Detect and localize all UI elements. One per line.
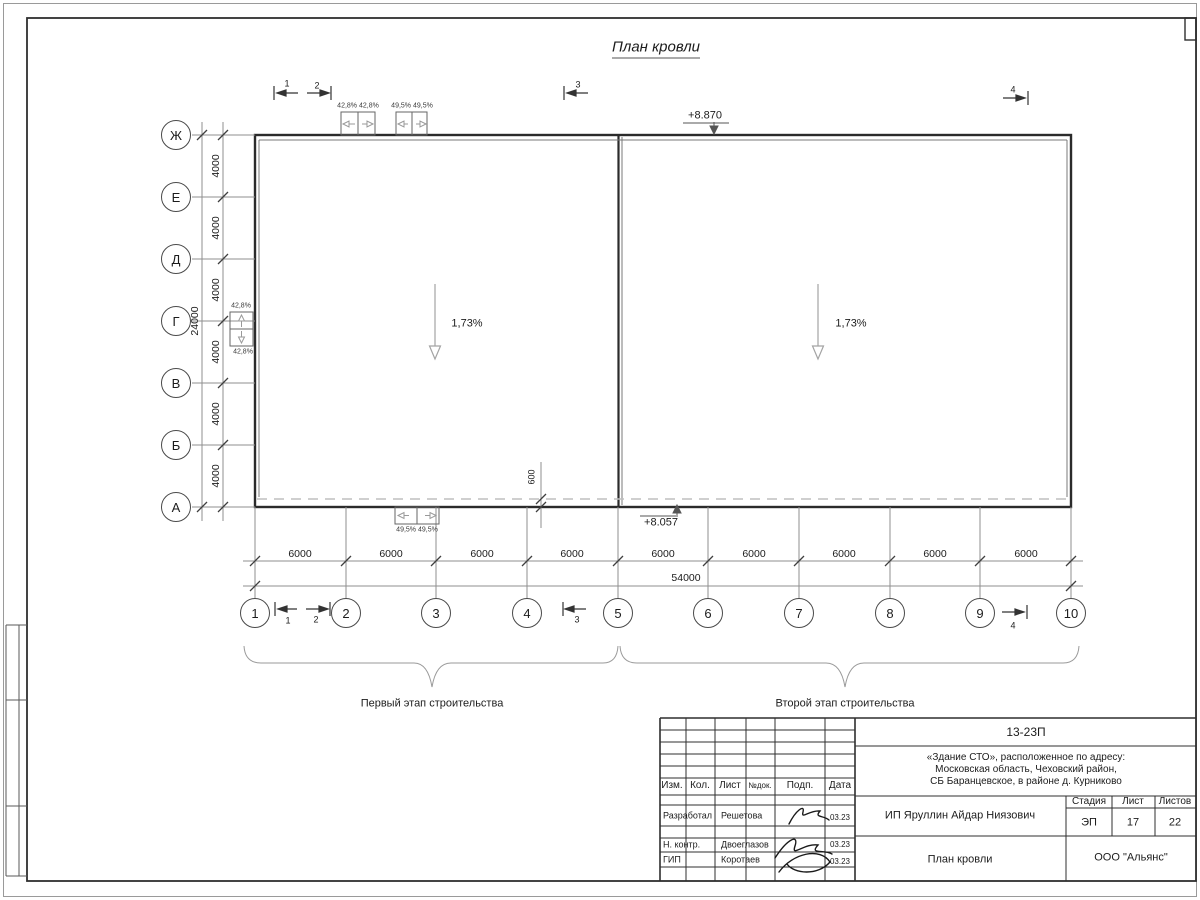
project-address-1: «Здание СТО», расположенное по адресу: (927, 753, 1125, 763)
dim-col: 6000 (1014, 549, 1037, 560)
dim-col: 6000 (560, 549, 583, 560)
company-name: ООО "Альянс" (1094, 853, 1168, 864)
dim-600: 600 (528, 469, 537, 484)
name-developer: Решетова (721, 812, 762, 821)
name-gip: Коротаев (721, 856, 760, 865)
axis-circle-col: 1 (240, 598, 270, 628)
axis-circle-col: 2 (331, 598, 361, 628)
axis-circle-row: А (161, 492, 191, 522)
dim-col-total: 54000 (671, 573, 700, 584)
project-code: 13-23П (1006, 726, 1045, 738)
dim-row: 4000 (211, 154, 222, 177)
section-label-bottom: 2 (313, 616, 318, 625)
col-header-izm: Изм. (661, 781, 682, 791)
dim-row: 4000 (211, 278, 222, 301)
signatures (775, 808, 832, 872)
col-header-podp: Подп. (787, 781, 814, 791)
dim-row: 4000 (211, 402, 222, 425)
axis-label: 9 (976, 606, 983, 621)
drawing-title: План кровли (612, 40, 700, 59)
date-ncontrol: 03.23 (830, 841, 850, 849)
section-label-top: 2 (314, 82, 319, 91)
axis-label: Ж (170, 128, 182, 143)
stage-1-label: Первый этап строительства (361, 699, 504, 710)
client-name: ИП Яруллин Айдар Ниязович (885, 811, 1035, 822)
slope-arrows (430, 284, 824, 359)
building-inner-lines (259, 137, 1067, 505)
section-markers (274, 86, 1028, 619)
axis-circle-row: Е (161, 182, 191, 212)
slope-label-right: 1,73% (835, 319, 866, 330)
dimension-ticks (197, 130, 1076, 591)
axis-label: 6 (704, 606, 711, 621)
axis-label: 3 (432, 606, 439, 621)
axis-circle-row: Ж (161, 120, 191, 150)
elevation-mark-top: +8.870 (688, 111, 722, 122)
axis-circle-col: 9 (965, 598, 995, 628)
dim-row: 4000 (211, 216, 222, 239)
axis-circle-col: 5 (603, 598, 633, 628)
col-header-data: Дата (829, 781, 851, 791)
col-header-ndok: №док. (748, 782, 771, 790)
axis-label: 5 (614, 606, 621, 621)
stage-header: Стадия (1072, 797, 1106, 807)
sheet-header: Лист (1122, 797, 1144, 807)
axis-label: Е (172, 190, 181, 205)
axis-label: А (172, 500, 181, 515)
slope-label-left: 1,73% (451, 319, 482, 330)
dim-col: 6000 (651, 549, 674, 560)
role-developer: Разработал (663, 812, 712, 821)
project-address-3: СБ Баранцевское, в районе д. Курниково (930, 777, 1122, 787)
dim-col: 6000 (832, 549, 855, 560)
axis-label: 8 (886, 606, 893, 621)
axis-circle-col: 4 (512, 598, 542, 628)
axis-circle-row: Д (161, 244, 191, 274)
role-gip: ГИП (663, 856, 681, 865)
axis-circle-col: 3 (421, 598, 451, 628)
axis-label: Д (172, 252, 181, 267)
axis-label: 2 (342, 606, 349, 621)
axis-label: 4 (523, 606, 530, 621)
name-ncontrol: Двоеглазов (721, 841, 769, 850)
vent-label-left-top: 42,8% (231, 303, 251, 310)
section-label-bottom: 4 (1010, 622, 1015, 631)
sheets-header: Листов (1159, 797, 1192, 807)
section-label-top: 3 (575, 81, 580, 90)
stage-value: ЭП (1081, 818, 1097, 829)
elevation-leaders (640, 122, 729, 516)
axis-lines (192, 122, 1083, 599)
axis-label: 1 (251, 606, 258, 621)
role-ncontrol: Н. контр. (663, 841, 700, 850)
building-outline (255, 135, 1071, 507)
project-address-2: Московская область, Чеховский район, (935, 765, 1117, 775)
roof-vents (230, 112, 439, 524)
vent-label-top-2: 49,5% 49,5% (391, 103, 433, 110)
axis-label: В (172, 376, 181, 391)
axis-circle-col: 6 (693, 598, 723, 628)
dim-row: 4000 (211, 340, 222, 363)
elevation-mark-bottom: +8.057 (644, 518, 678, 529)
axis-circle-row: Б (161, 430, 191, 460)
drawing-sheet: План кровли +8.870 +8.057 1,73% 1,73% 42… (0, 0, 1200, 900)
col-header-list: Лист (719, 781, 741, 791)
axis-label: Г (172, 314, 179, 329)
dim-row-total: 24000 (190, 306, 201, 335)
axis-circle-row: В (161, 368, 191, 398)
vent-label-top-1: 42,8% 42,8% (337, 103, 379, 110)
vent-label-left-bottom: 42,8% (233, 349, 253, 356)
section-label-bottom: 3 (574, 616, 579, 625)
dim-col: 6000 (470, 549, 493, 560)
axis-circle-col: 7 (784, 598, 814, 628)
margin-boxes (6, 625, 27, 876)
sheets-total: 22 (1169, 818, 1181, 829)
stage-2-label: Второй этап строительства (776, 699, 915, 710)
dim-row: 4000 (211, 464, 222, 487)
dim-col: 6000 (379, 549, 402, 560)
stage-braces (244, 646, 1079, 687)
col-header-kol: Кол. (690, 781, 710, 791)
document-title: План кровли (928, 855, 993, 866)
axis-circle-col: 10 (1056, 598, 1086, 628)
dim-col: 6000 (288, 549, 311, 560)
date-gip: 03.23 (830, 858, 850, 866)
axis-label: 10 (1064, 606, 1078, 621)
axis-circle-row: Г (161, 306, 191, 336)
vent-arrows (239, 121, 437, 519)
dim-col: 6000 (742, 549, 765, 560)
section-label-bottom: 1 (285, 617, 290, 626)
section-label-top: 4 (1010, 86, 1015, 95)
sheet-number: 17 (1127, 818, 1139, 829)
axis-label: Б (172, 438, 181, 453)
vent-label-bottom: 49,5% 49,5% (396, 527, 438, 534)
date-developer: 03.23 (830, 814, 850, 822)
axis-circle-col: 8 (875, 598, 905, 628)
section-label-top: 1 (284, 80, 289, 89)
dim-col: 6000 (923, 549, 946, 560)
axis-label: 7 (795, 606, 802, 621)
